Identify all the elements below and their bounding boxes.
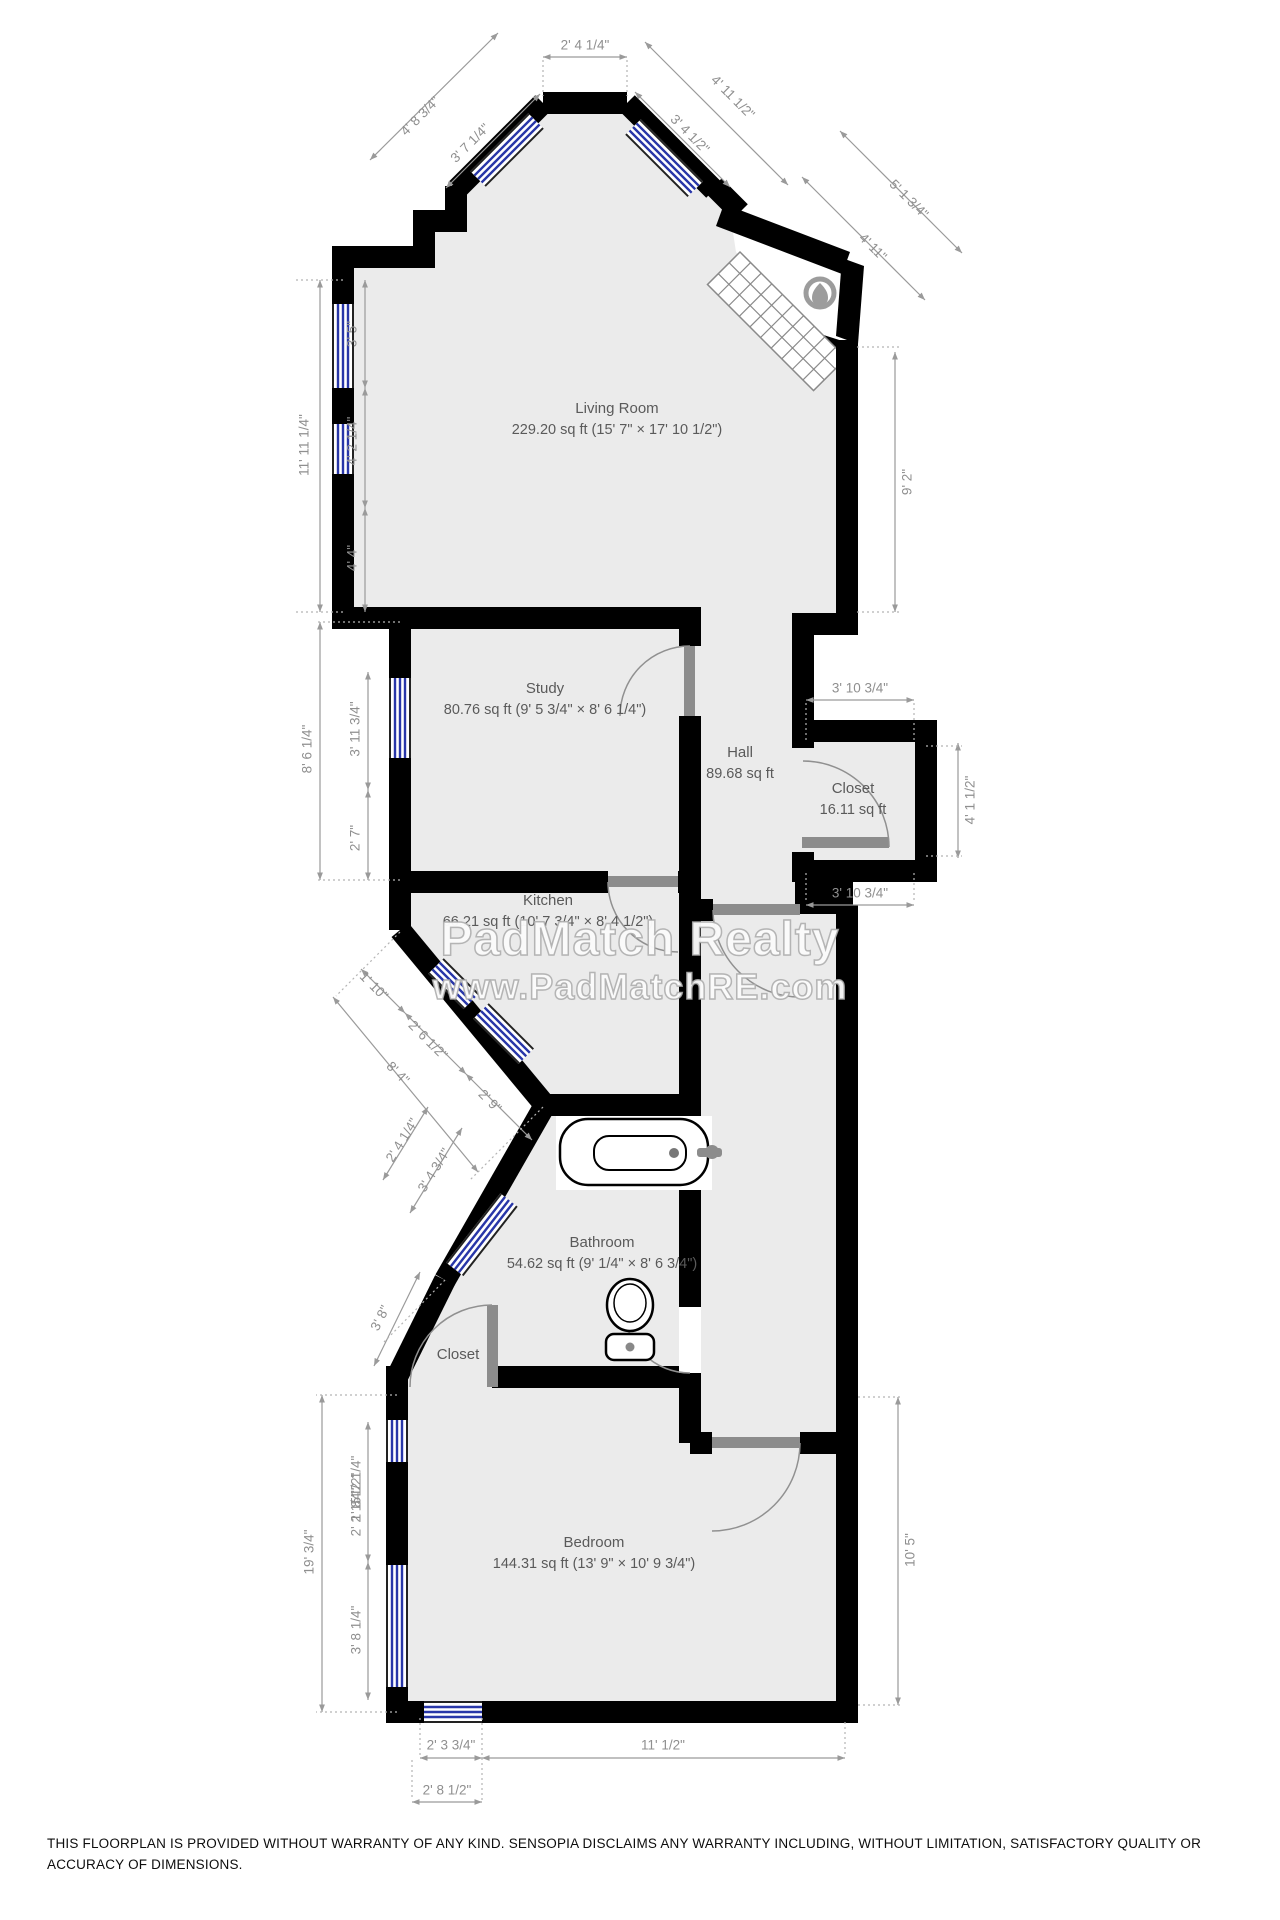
bedroom-closet-door-panel [487, 1305, 498, 1387]
watermark-url: www.PadMatchRE.com [433, 966, 848, 1008]
bedroom-door-panel [712, 1437, 800, 1448]
floorplan-page: Living Room229.20 sq ft (15' 7" × 17' 10… [0, 0, 1280, 1920]
window-living-2-icon [332, 424, 354, 474]
study-door-panel [684, 646, 695, 716]
kitchen-door-panel [608, 876, 678, 887]
bathroom-door-opening [679, 1307, 701, 1373]
watermark-brand: PadMatch Realty [440, 912, 839, 967]
toilet-icon [606, 1279, 654, 1360]
hall-closet-door-panel [802, 837, 889, 848]
disclaimer-text: THIS FLOORPLAN IS PROVIDED WITHOUT WARRA… [47, 1834, 1237, 1876]
window-study-icon [389, 678, 411, 758]
window-bedroom-1-icon [386, 1420, 408, 1462]
bathtub-icon [556, 1116, 722, 1190]
wall-block [795, 862, 853, 914]
window-bedroom-2-icon [386, 1565, 408, 1687]
window-living-1-icon [332, 304, 354, 388]
window-bedroom-bottom-icon [424, 1701, 482, 1723]
